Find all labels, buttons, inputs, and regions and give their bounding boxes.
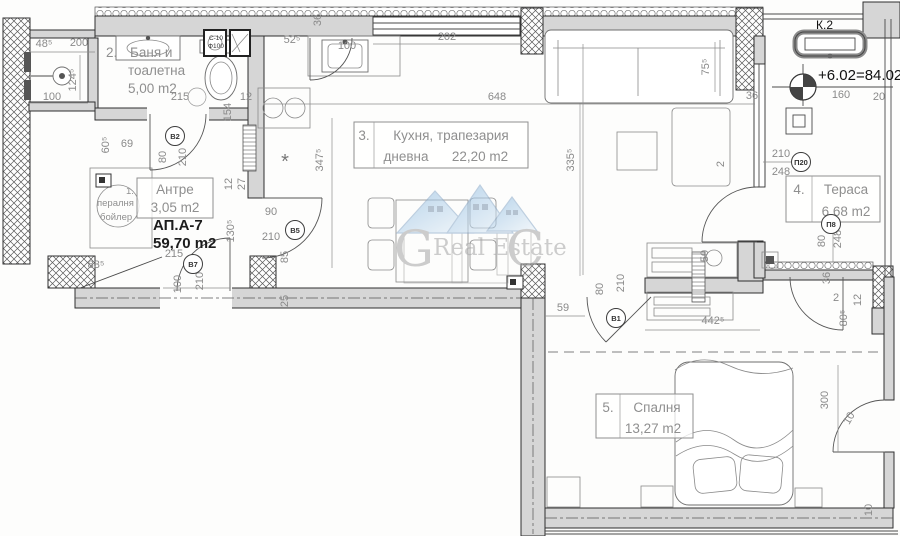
chimney-k2 xyxy=(795,32,865,59)
svg-text:П20: П20 xyxy=(794,158,808,167)
bedroom-label: 5. Спалня 13,27 m2 xyxy=(596,394,693,438)
dimension-label: 48⁵ xyxy=(36,38,53,50)
dimension-label: 202 xyxy=(438,31,456,43)
floor-plan-page: G Real Estate C 2. Баня и тоалетна 5,00 … xyxy=(0,0,900,536)
dimension-label: 248 xyxy=(772,166,790,178)
dimension-label: 215 xyxy=(165,248,183,260)
dimension-label: 442⁵ xyxy=(702,315,725,327)
hall-label: Антре 3,05 m2 xyxy=(137,178,213,218)
svg-text:В5: В5 xyxy=(290,226,300,235)
vent-label-2: Ф100 xyxy=(208,43,224,50)
dimension-label: 210 xyxy=(262,231,280,243)
dimension-label: 69 xyxy=(121,138,133,150)
dimension-label: 648 xyxy=(488,91,506,103)
dimension-label: 27 xyxy=(236,178,248,190)
shaft-label: К.2 xyxy=(816,18,833,32)
kitchen-label: 3. Кухня, трапезария дневна 22,20 m2 xyxy=(354,122,528,168)
dimension-label: 100 xyxy=(43,91,61,103)
opening-tag-В1: В1 xyxy=(607,309,626,328)
dimension-label: 75⁵ xyxy=(700,59,712,76)
dimension-label: 36 xyxy=(821,272,833,284)
kitchen-number: 3. xyxy=(358,128,369,143)
kitchen-area: 22,20 m2 xyxy=(452,149,508,164)
watermark-letter-g: G xyxy=(394,220,434,278)
armchair xyxy=(672,108,730,186)
svg-text:В1: В1 xyxy=(611,314,621,323)
dimension-label: 335⁵ xyxy=(565,149,577,172)
dimension-label: 80 xyxy=(816,235,828,247)
opening-tag-П20: П20 xyxy=(792,153,811,172)
dimension-label: 210 xyxy=(772,148,790,160)
terrace-number: 4. xyxy=(793,182,804,197)
dimension-label: 80 xyxy=(594,283,606,295)
door-terrace xyxy=(702,187,757,242)
dimension-label: 210 xyxy=(194,272,206,290)
dimension-label: 2 xyxy=(833,292,839,304)
dimension-label: 25 xyxy=(279,295,291,307)
laundry-number: 1. xyxy=(126,186,134,197)
dimension-label: 215 xyxy=(171,91,189,103)
dimension-label: 85 xyxy=(279,251,291,263)
laundry-name-1: пералня xyxy=(97,198,134,209)
vent-label-1: С-10 xyxy=(209,35,223,42)
apartment-code: АП.А-7 xyxy=(153,217,203,234)
dimension-label: 210 xyxy=(615,274,627,292)
kitchen-name-2: дневна xyxy=(384,149,429,164)
svg-text:П8: П8 xyxy=(826,220,836,229)
dimension-label: 36 xyxy=(746,90,758,102)
bedroom-number: 5. xyxy=(602,400,613,415)
dimension-label: 52⁵ xyxy=(284,34,301,46)
opening-tag-В5: В5 xyxy=(286,221,305,240)
dimension-label: 10 xyxy=(841,410,858,427)
door-bedroom-right xyxy=(833,400,885,452)
opening-tag-П8: П8 xyxy=(822,215,841,234)
kitchen-name-1: Кухня, трапезария xyxy=(393,128,508,143)
dimension-label: 20 xyxy=(873,91,885,103)
laundry-name-2: бойлер xyxy=(100,212,132,223)
hall-area: 3,05 m2 xyxy=(151,200,200,215)
svg-text:В7: В7 xyxy=(188,260,198,269)
dimension-label: 2 xyxy=(715,161,727,167)
dimension-label: 154 xyxy=(222,103,234,121)
coffee-table xyxy=(617,132,657,170)
dimension-label: 36 xyxy=(312,14,324,26)
dimension-label: 12 xyxy=(223,178,235,190)
bedroom-name: Спалня xyxy=(633,400,680,415)
bathroom-area: 5,00 m2 xyxy=(128,81,177,96)
dimension-label: 160 xyxy=(832,89,850,101)
bathroom-name-1: Баня и xyxy=(130,45,172,60)
bathroom-number: 2. xyxy=(106,45,117,60)
dimension-label: 347⁵ xyxy=(314,149,326,172)
radiator xyxy=(243,125,256,171)
dimension-label: 10 xyxy=(863,504,875,516)
bedroom-area: 13,27 m2 xyxy=(625,421,681,436)
dimension-label: 12 xyxy=(852,294,864,306)
dimension-label: 130⁵ xyxy=(225,220,237,243)
dimension-label: 100 xyxy=(172,275,184,293)
svg-text:В2: В2 xyxy=(170,132,180,141)
dimension-label: 12 xyxy=(240,91,252,103)
ac-symbol: * xyxy=(281,151,289,173)
dimension-label: 124⁵ xyxy=(67,69,79,92)
dimension-label: 300 xyxy=(819,391,831,409)
shaft-symbol xyxy=(786,108,812,134)
watermark-letter-c: C xyxy=(506,220,544,278)
dimension-label: 80 xyxy=(157,151,169,163)
dimension-label: 90 xyxy=(265,206,277,218)
terrace-name: Тераса xyxy=(824,182,869,197)
apartment-area: 59,70 m2 xyxy=(153,235,216,252)
dimension-label: 83⁵ xyxy=(88,259,105,271)
opening-tag-В7: В7 xyxy=(184,255,203,274)
dimension-label: 100 xyxy=(338,40,356,52)
vent-circle xyxy=(188,88,206,106)
opening-tag-В2: В2 xyxy=(166,127,185,146)
dimension-label: 60⁵ xyxy=(100,137,112,154)
dimension-label: 59 xyxy=(557,302,569,314)
dimension-label: 80⁵ xyxy=(838,310,850,327)
dimension-label: 200 xyxy=(70,37,88,49)
dimension-label: 50 xyxy=(699,250,711,262)
dimension-label: 210 xyxy=(177,148,189,166)
dresser xyxy=(547,477,580,507)
floor-plan-drawing: G Real Estate C 2. Баня и тоалетна 5,00 … xyxy=(0,0,900,536)
hall-name: Антре xyxy=(156,182,194,197)
cooktop xyxy=(258,88,310,128)
bathroom-name-2: тоалетна xyxy=(128,63,186,78)
level-mark-value: +6.02=84.02 xyxy=(818,67,900,84)
watermark-text: Real Estate xyxy=(433,235,567,261)
